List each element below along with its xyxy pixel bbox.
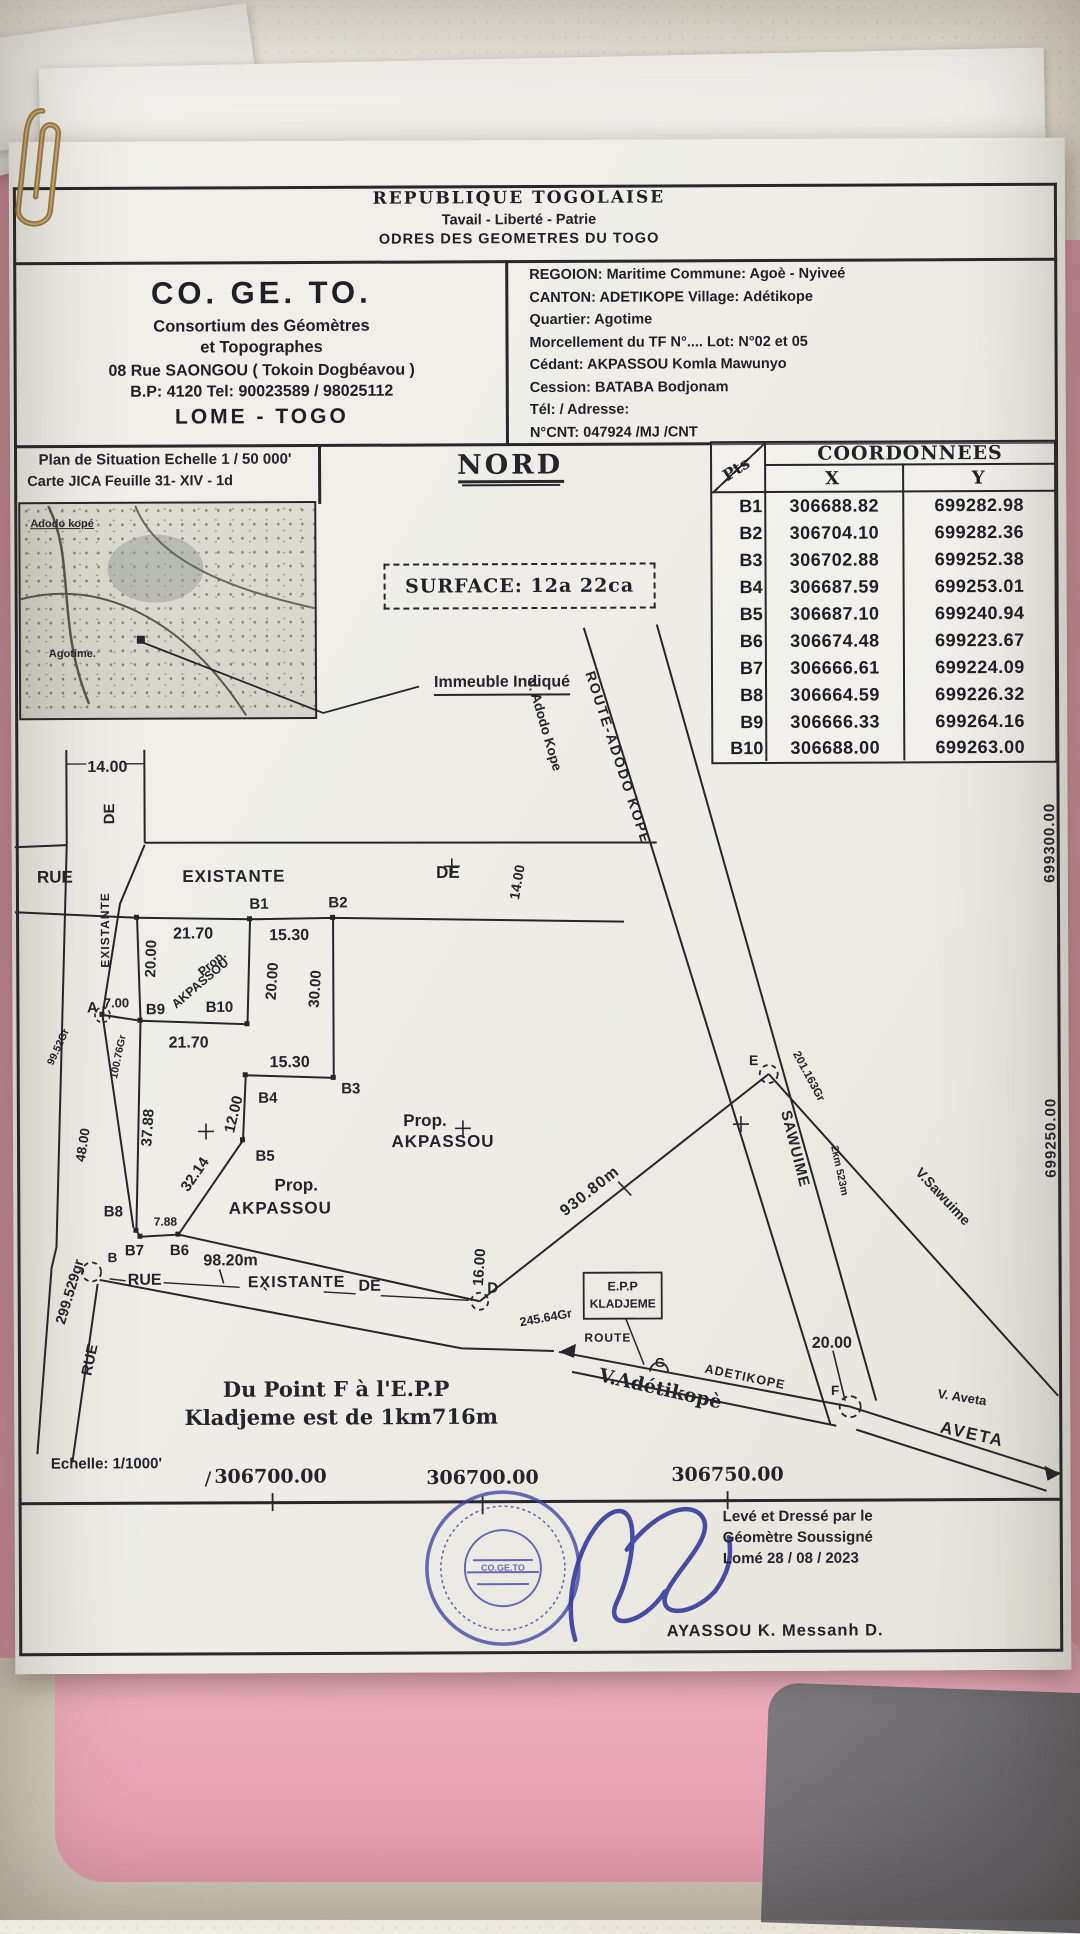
point-dot <box>331 1075 336 1080</box>
tick <box>220 1269 224 1283</box>
point-dot <box>134 915 139 920</box>
point-dot <box>330 915 335 920</box>
cert-line1: Levé et Dressé par le <box>723 1507 873 1528</box>
point-dot <box>137 1018 142 1023</box>
gray-surface-corner <box>761 1682 1080 1933</box>
dim-9820: 98.20m <box>203 1253 257 1269</box>
dim-1600: 16.00 <box>471 1248 488 1286</box>
pt-a: A <box>87 1000 98 1015</box>
note-line1: Du Point F à l'E.P.P <box>223 1378 450 1400</box>
cert-line3: Lomé 28 / 08 / 2023 <box>723 1549 859 1570</box>
dim-2000R: 20.00 <box>264 962 281 1000</box>
dim-3788: 37.88 <box>139 1108 156 1146</box>
note-line2: Kladjeme est de 1km716m <box>185 1406 498 1428</box>
street-de2: DE <box>436 864 460 881</box>
dim-2170b: 21.70 <box>169 1035 209 1051</box>
grid-699250: 699250.00 <box>1043 1098 1058 1178</box>
epp-line1: E.P.P <box>607 1280 637 1293</box>
pt-b10: B10 <box>206 1000 234 1015</box>
pt-b3: B3 <box>341 1081 360 1096</box>
point-dot <box>245 1021 250 1026</box>
leader-line <box>141 641 419 714</box>
point-dot <box>247 916 252 921</box>
epp-line2: KLADJEME <box>590 1297 656 1309</box>
grid-tick <box>273 1491 728 1515</box>
pt-b8: B8 <box>104 1204 123 1219</box>
point-dot <box>133 1228 138 1233</box>
pt-b4: B4 <box>258 1091 277 1106</box>
dim-2000F: 20.00 <box>812 1336 852 1352</box>
street-de: DE <box>102 803 117 824</box>
angle-arc-D <box>471 1293 488 1310</box>
width-14: 14.00 <box>87 760 127 776</box>
street-line <box>333 917 624 923</box>
plan-drawing <box>9 138 1072 1675</box>
street-line <box>145 840 657 844</box>
stamp-text: CO.GE.TO <box>481 1564 525 1573</box>
point-dot <box>243 1072 248 1077</box>
point-dot <box>137 1234 142 1239</box>
de-bottom: DE <box>359 1279 381 1295</box>
street-line <box>37 1268 53 1454</box>
scale-note: Echelle: 1/1000' <box>51 1456 162 1471</box>
pt-b7: B7 <box>125 1243 144 1258</box>
street-existante: EXISTANTE <box>182 868 285 885</box>
grid-tick <box>205 1471 210 1486</box>
dim-3000: 30.00 <box>307 970 324 1008</box>
road-route-small: ROUTE <box>584 1332 631 1344</box>
pt-b: B <box>108 1251 118 1265</box>
cert-line2: Géomètre Soussigné <box>723 1528 873 1549</box>
road-arrow <box>1044 1466 1060 1481</box>
point-dot <box>175 1232 180 1237</box>
dim-2000L: 20.00 <box>143 940 159 978</box>
pt-f: F <box>831 1384 839 1398</box>
survey-document: REPUBLIQUE TOGOLAISE Tavail - Liberté - … <box>9 138 1072 1675</box>
prop-right: Prop. <box>403 1112 447 1129</box>
dim-1530b: 15.30 <box>270 1055 310 1071</box>
point-dot <box>99 1012 104 1017</box>
street-rue: RUE <box>37 869 73 886</box>
point-dot <box>240 1137 245 1142</box>
pt-g: G <box>655 1356 665 1369</box>
grid-x3: 306750.00 <box>671 1465 783 1484</box>
street-existante-vert: EXISTANTE <box>99 892 111 968</box>
grid-x2: 306700.00 <box>426 1469 538 1488</box>
pt-b1: B1 <box>249 897 268 912</box>
akpassou-mid: AKPASSOU <box>229 1199 332 1216</box>
grid-699300: 699300.00 <box>1042 803 1057 883</box>
akpassou-right: AKPASSOU <box>391 1133 494 1150</box>
paperclip <box>14 100 84 250</box>
pt-e: E <box>749 1053 758 1067</box>
street-line <box>15 845 67 847</box>
pt-b5: B5 <box>255 1149 274 1164</box>
road-arrow <box>559 1344 576 1358</box>
grid-x1: 306700.00 <box>214 1467 326 1486</box>
pt-d: D <box>487 1281 498 1296</box>
existante-bottom: EXISTANTE <box>248 1275 346 1291</box>
rue-bottom: RUE <box>128 1273 162 1289</box>
dim-700: 7.00 <box>104 996 129 1009</box>
pt-b2: B2 <box>328 895 347 910</box>
surveyor-name: AYASSOU K. Messanh D. <box>667 1622 884 1639</box>
tie-line <box>102 1015 140 1021</box>
pt-b6: B6 <box>170 1243 189 1258</box>
dim-788: 7.88 <box>154 1216 177 1228</box>
grid-cross <box>198 1123 214 1139</box>
dim-1530a: 15.30 <box>269 928 309 944</box>
pt-b9: B9 <box>146 1002 165 1017</box>
prop-mid: Prop. <box>274 1176 318 1193</box>
signature <box>570 1509 730 1640</box>
dim-2170a: 21.70 <box>173 926 213 942</box>
road-adodo <box>657 624 876 1402</box>
